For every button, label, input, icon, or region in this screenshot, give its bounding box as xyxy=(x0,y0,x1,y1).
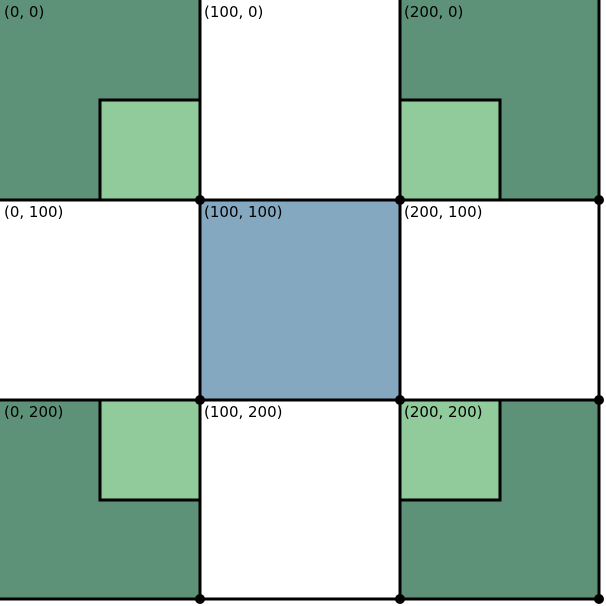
coordinate-grid-figure: (0, 0) (100, 0) (200, 0) (0, 100) (100, … xyxy=(0,0,606,606)
cell-0-100 xyxy=(0,200,200,400)
cell-100-100 xyxy=(200,200,400,400)
cell-label-100-100: (100, 100) xyxy=(204,203,283,221)
inner-square-200-0 xyxy=(400,100,500,200)
grid-point-200-300 xyxy=(395,594,405,604)
inner-square-0-0 xyxy=(100,100,200,200)
grid-point-300-200 xyxy=(594,395,604,405)
cell-label-0-100: (0, 100) xyxy=(4,203,63,221)
cell-label-0-0: (0, 0) xyxy=(4,3,44,21)
grid-point-300-100 xyxy=(594,195,604,205)
cell-100-0 xyxy=(200,0,400,200)
cell-200-100 xyxy=(400,200,600,400)
cell-label-100-200: (100, 200) xyxy=(204,403,283,421)
cell-label-200-200: (200, 200) xyxy=(404,403,483,421)
grid-svg: (0, 0) (100, 0) (200, 0) (0, 100) (100, … xyxy=(0,0,606,606)
cell-label-0-200: (0, 200) xyxy=(4,403,63,421)
cell-label-200-0: (200, 0) xyxy=(404,3,463,21)
grid-point-300-300 xyxy=(594,594,604,604)
cell-label-100-0: (100, 0) xyxy=(204,3,263,21)
cell-label-200-100: (200, 100) xyxy=(404,203,483,221)
cell-100-200 xyxy=(200,400,400,600)
grid-point-100-300 xyxy=(195,594,205,604)
inner-square-0-200 xyxy=(100,400,200,500)
